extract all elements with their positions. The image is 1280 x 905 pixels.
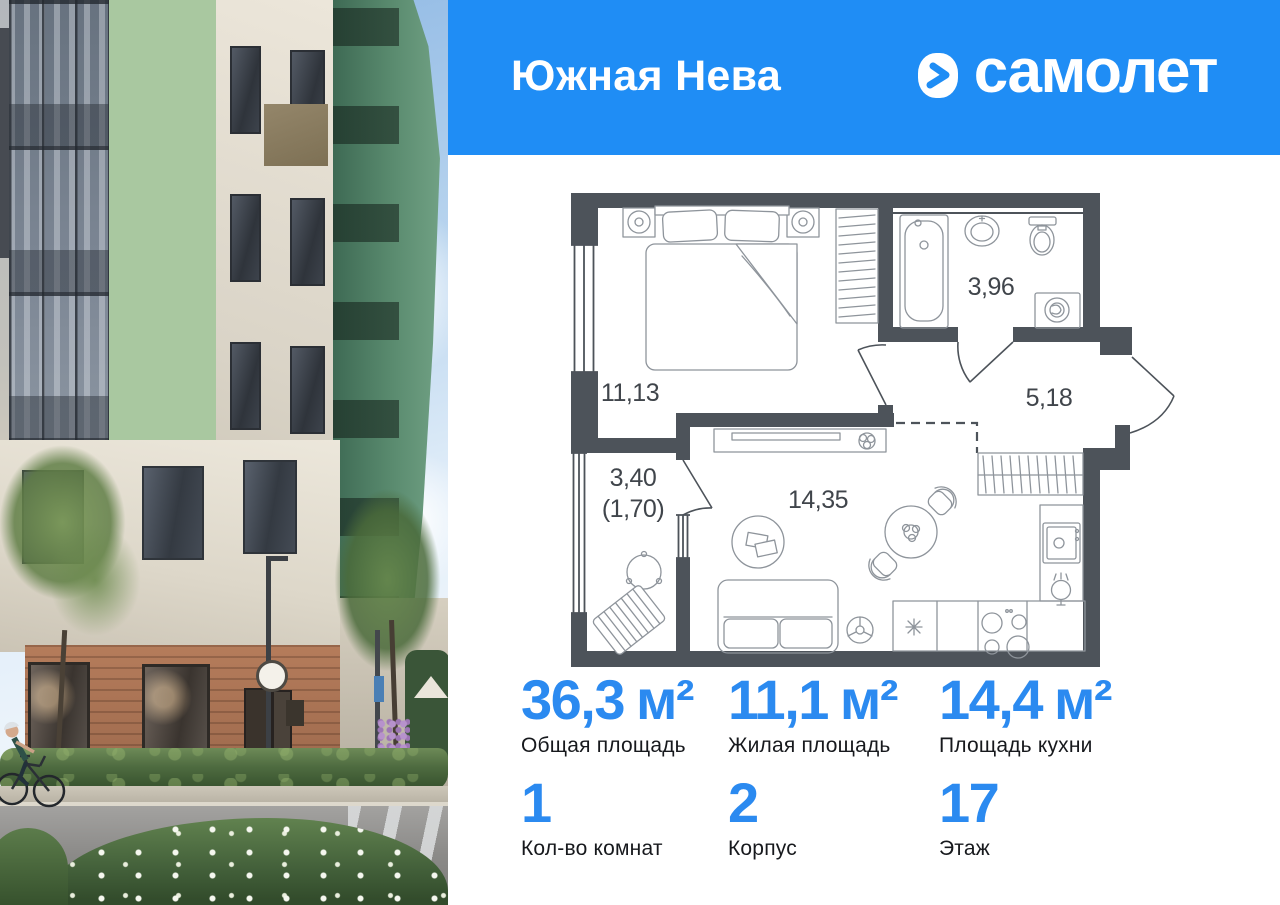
stat-value: 14,4м² bbox=[939, 672, 1111, 728]
photo-facade-panel bbox=[264, 104, 328, 166]
samolet-chevron-icon bbox=[918, 53, 958, 98]
stat-label: Площадь кухни bbox=[939, 734, 1111, 758]
photo-window bbox=[290, 198, 325, 286]
photo-cafe-window bbox=[142, 664, 210, 756]
stat-label: Жилая площадь bbox=[728, 734, 939, 758]
plan-zone-dashline bbox=[896, 423, 977, 453]
stat-label: Кол-во комнат bbox=[521, 837, 728, 861]
header-banner: Южная Нева самолет bbox=[448, 0, 1280, 155]
photo-window bbox=[230, 46, 261, 134]
stat-unit: м² bbox=[636, 668, 693, 731]
stat-total-area: 36,3м² Общая площадь bbox=[521, 672, 728, 758]
brand-wordmark: самолет bbox=[974, 41, 1217, 109]
stat-label: Корпус bbox=[728, 837, 939, 861]
stat-rooms-count: 1 Кол-во комнат bbox=[521, 775, 728, 861]
stat-floor: 17 Этаж bbox=[939, 775, 998, 861]
stat-number: 11,1 bbox=[728, 668, 828, 731]
room-area-bedroom: 11,13 bbox=[601, 379, 659, 407]
stat-value: 17 bbox=[939, 775, 998, 831]
plan-balcony-furniture bbox=[592, 552, 666, 656]
photo-window bbox=[243, 460, 297, 554]
room-area-bathroom: 3,96 bbox=[968, 273, 1015, 301]
stat-label: Этаж bbox=[939, 837, 998, 861]
stat-living-area: 11,1м² Жилая площадь bbox=[728, 672, 939, 758]
floor-plan: 11,13 3,96 5,18 14,35 3,40 (1,70) bbox=[566, 190, 1178, 675]
photo-flowers bbox=[376, 718, 410, 752]
photo-cyclist bbox=[0, 686, 69, 811]
stat-value: 2 bbox=[728, 775, 939, 831]
room-area-balcony-reduced: (1,70) bbox=[602, 495, 664, 523]
detail-stats: 1 Кол-во комнат 2 Корпус 17 Этаж bbox=[521, 775, 998, 861]
photo-building-glass-tower bbox=[98, 0, 216, 452]
stat-building: 2 Корпус bbox=[728, 775, 939, 861]
room-area-hallway: 5,18 bbox=[1026, 384, 1073, 412]
stat-kitchen-area: 14,4м² Площадь кухни bbox=[939, 672, 1111, 758]
right-panel: Южная Нева самолет bbox=[448, 0, 1280, 905]
photo-street-lamp-arm bbox=[266, 556, 288, 561]
stat-value: 11,1м² bbox=[728, 672, 939, 728]
photo-tree bbox=[30, 500, 160, 660]
stat-number: 36,3 bbox=[521, 668, 624, 731]
stat-value: 36,3м² bbox=[521, 672, 728, 728]
room-area-balcony: 3,40 bbox=[610, 464, 657, 492]
building-photo bbox=[0, 0, 448, 905]
project-name: Южная Нева bbox=[511, 44, 781, 109]
stat-unit: м² bbox=[1054, 668, 1111, 731]
plan-bedroom-furniture bbox=[623, 206, 878, 370]
photo-tower-glazing bbox=[9, 0, 109, 440]
stat-unit: м² bbox=[840, 668, 897, 731]
photo-signboard bbox=[286, 700, 304, 726]
photo-window bbox=[230, 194, 261, 282]
photo-window bbox=[290, 346, 325, 434]
photo-window bbox=[230, 342, 261, 430]
plan-bathroom-furniture bbox=[900, 215, 1080, 328]
plan-hallway-furniture bbox=[978, 453, 1083, 495]
stat-value: 1 bbox=[521, 775, 728, 831]
stat-number: 14,4 bbox=[939, 668, 1042, 731]
room-area-kitchen-living: 14,35 bbox=[788, 486, 848, 514]
area-stats: 36,3м² Общая площадь 11,1м² Жилая площад… bbox=[521, 672, 1111, 758]
brand-logo: самолет bbox=[918, 45, 1217, 105]
stat-label: Общая площадь bbox=[521, 734, 728, 758]
photo-cafe-sign bbox=[256, 660, 288, 692]
photo-street-sign bbox=[374, 676, 384, 702]
